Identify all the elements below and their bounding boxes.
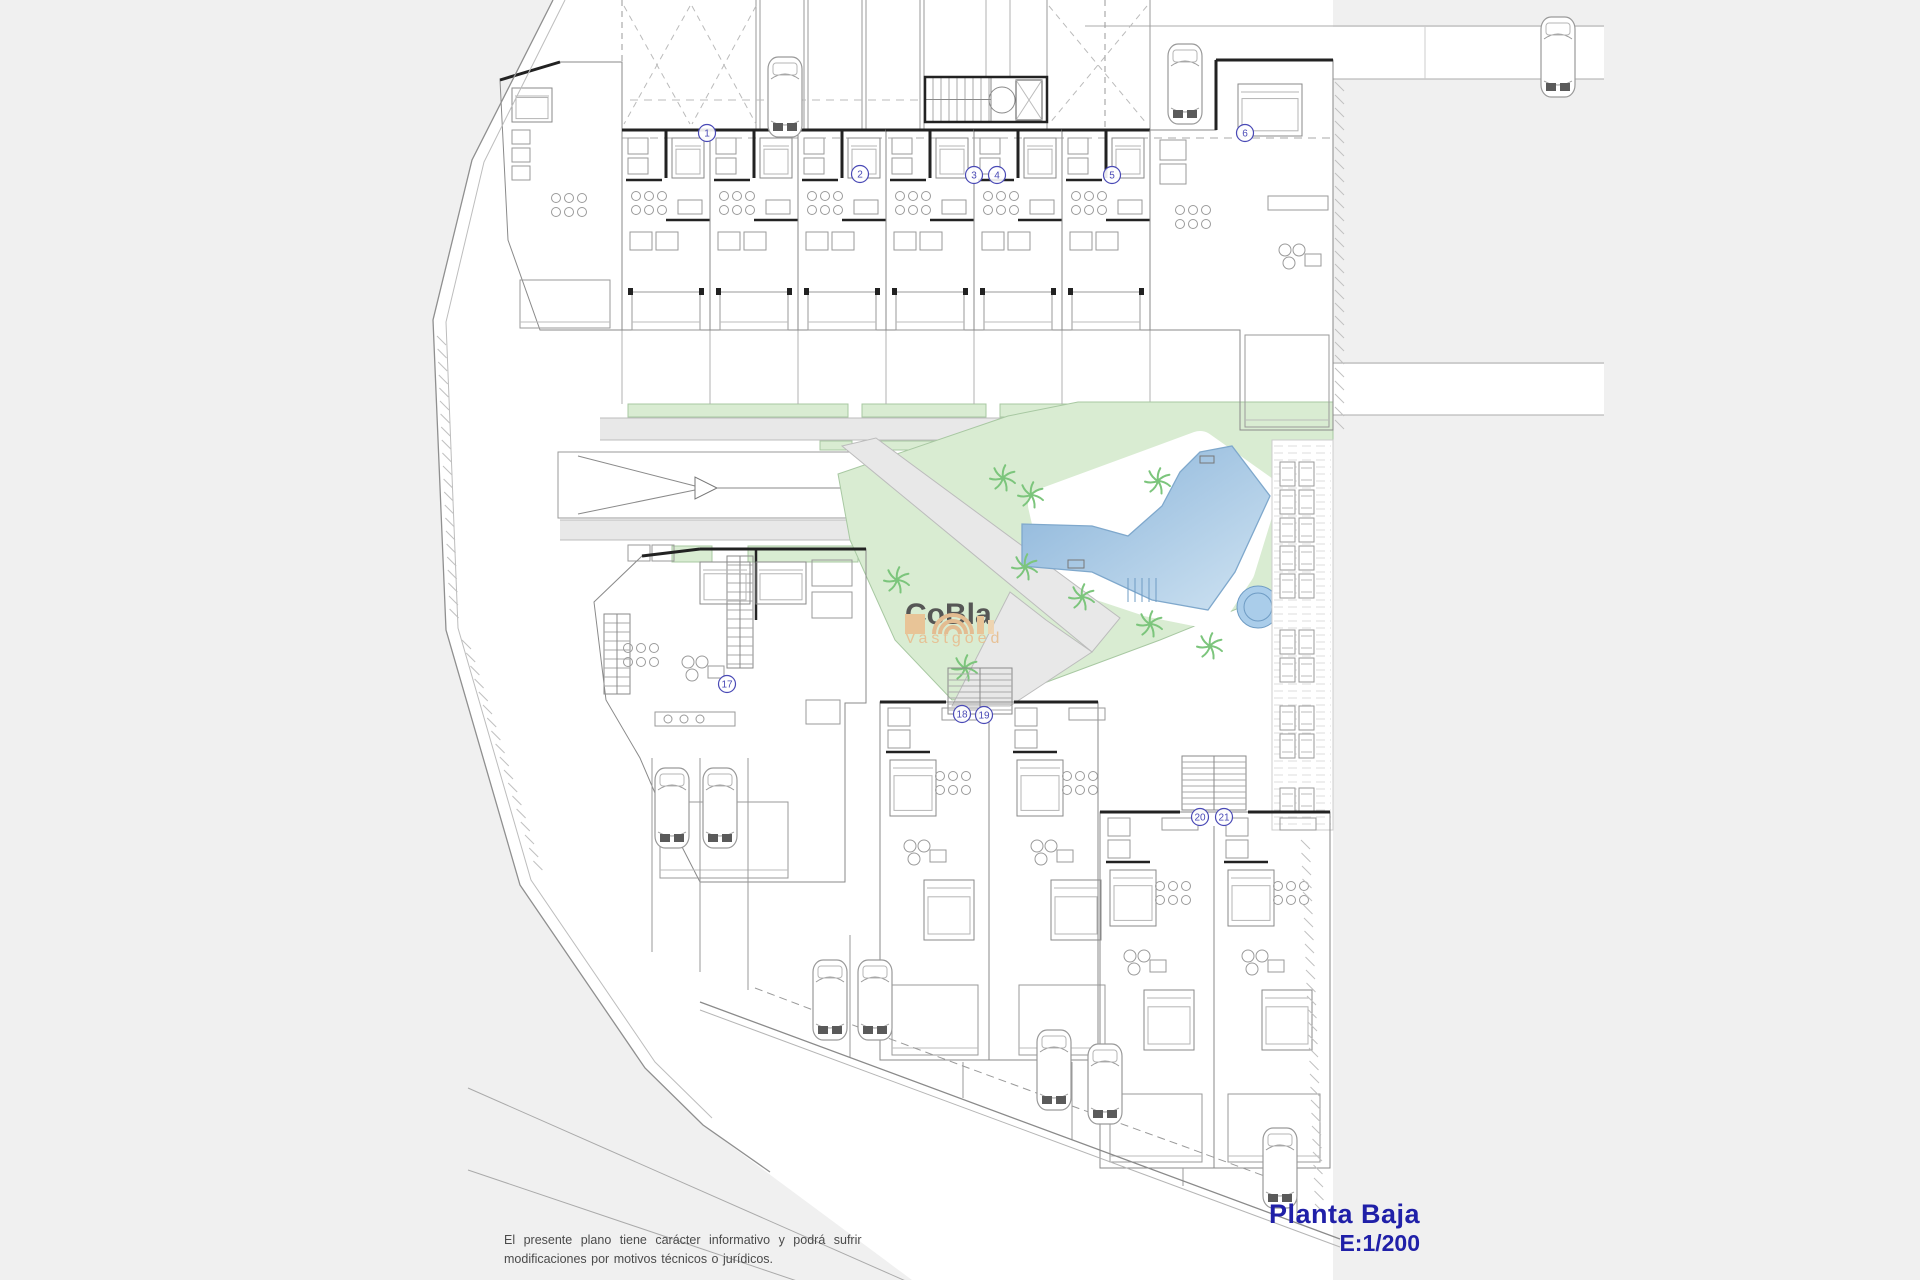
car: [703, 768, 737, 848]
disclaimer-line-1: El presente plano tiene carácter informa…: [504, 1231, 844, 1250]
svg-text:4: 4: [994, 171, 1000, 182]
unit-label-20: 20: [1192, 809, 1209, 826]
car: [768, 57, 802, 137]
disclaimer-note: El presente plano tiene carácter informa…: [504, 1231, 844, 1269]
unit-label-21: 21: [1216, 809, 1233, 826]
svg-text:19: 19: [978, 711, 990, 722]
car: [858, 960, 892, 1040]
unit-label-5: 5: [1104, 167, 1121, 184]
car: [655, 768, 689, 848]
unit-label-17: 17: [719, 676, 736, 693]
disclaimer-line-2: modificaciones por motivos técnicos o ju…: [504, 1250, 844, 1269]
car: [813, 960, 847, 1040]
plan-scale: E:1/200: [1120, 1230, 1420, 1258]
svg-text:18: 18: [956, 710, 968, 721]
svg-text:3: 3: [971, 171, 977, 182]
svg-text:1: 1: [704, 129, 710, 140]
plan-title: Planta Baja: [1120, 1198, 1420, 1230]
svg-text:6: 6: [1242, 129, 1248, 140]
svg-text:2: 2: [857, 170, 863, 181]
unit-label-3: 3: [966, 167, 983, 184]
svg-text:5: 5: [1109, 171, 1115, 182]
unit-label-19: 19: [976, 707, 993, 724]
svg-text:21: 21: [1218, 813, 1230, 824]
svg-text:17: 17: [721, 680, 733, 691]
car: [1088, 1044, 1122, 1124]
car: [1037, 1030, 1071, 1110]
unit-label-1: 1: [699, 125, 716, 142]
unit-label-2: 2: [852, 166, 869, 183]
floor-plan-page: 1234561718192021 CoBla Vastgoed Planta B…: [0, 0, 1920, 1280]
car: [1263, 1128, 1297, 1208]
car: [1541, 17, 1575, 97]
car: [1168, 44, 1202, 124]
sun-deck: [1272, 440, 1333, 830]
unit-label-4: 4: [989, 167, 1006, 184]
svg-text:20: 20: [1194, 813, 1206, 824]
cobla-watermark-logo: CoBla Vastgoed: [905, 604, 1055, 648]
unit-label-6: 6: [1237, 125, 1254, 142]
unit-label-18: 18: [954, 706, 971, 723]
cobla-logo-icon: [905, 604, 1015, 644]
title-block: Planta Baja E:1/200: [1120, 1198, 1420, 1258]
